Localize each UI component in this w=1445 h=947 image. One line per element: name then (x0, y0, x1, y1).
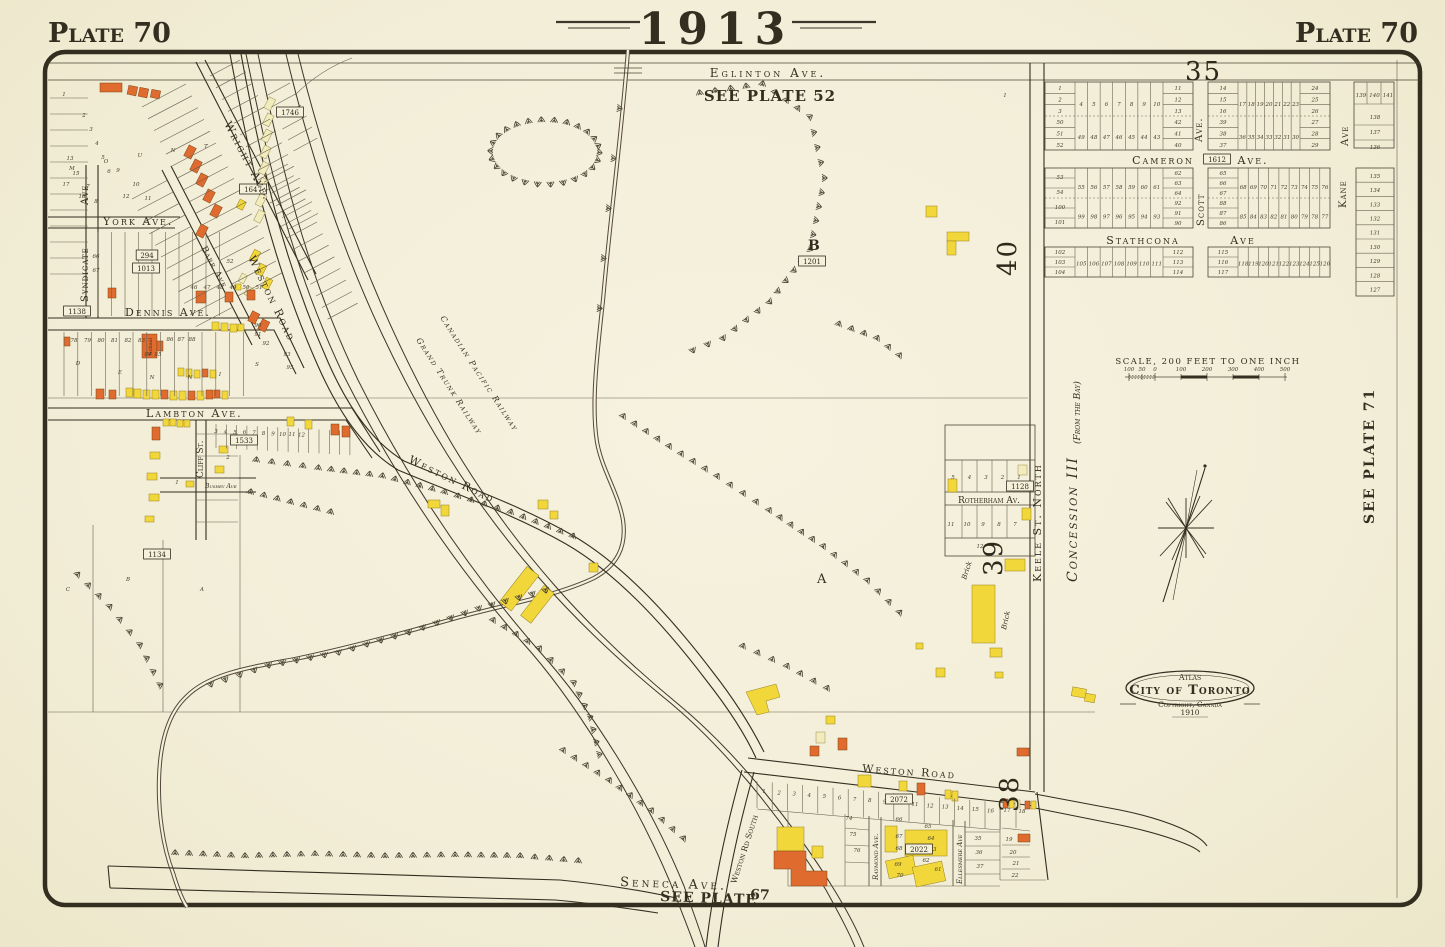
lot-number: 12 (123, 194, 130, 200)
lot-number: 23 (1291, 102, 1299, 108)
lot-division-line (299, 245, 329, 261)
lot-number: 59 (1128, 185, 1135, 191)
lot-number: 66 (896, 817, 903, 823)
lot-number: 24 (1311, 86, 1319, 92)
tree-band (175, 855, 578, 863)
lot-division-line (167, 250, 203, 269)
lot-number: 97 (1103, 214, 1110, 220)
lot-number: 28 (1311, 131, 1319, 137)
lot-number: 64 (1175, 191, 1182, 197)
lot-number: 52 (1057, 143, 1064, 149)
bushey-ave-label: Bushey Ave (204, 483, 237, 490)
brick-label-2: Brick (1000, 610, 1012, 631)
lot-number: 9 (1142, 102, 1146, 108)
lot-number: 92 (263, 341, 270, 347)
lot-number: 1 (175, 480, 179, 486)
cliff-st-label: Cliff St. (196, 440, 206, 478)
lot-number: 3 (984, 475, 988, 481)
scale-tick: 300 (1228, 367, 1239, 373)
section-35: 35 (1185, 57, 1222, 87)
lot-number: 7 (853, 797, 857, 803)
plate-label-left: Plate 70 (48, 18, 171, 49)
lot-division-line (266, 83, 290, 96)
plan-number: 1013 (137, 265, 155, 273)
lot-number: 137 (1370, 130, 1381, 136)
lot-number: 83 (138, 338, 145, 344)
lot-number: 10 (279, 432, 286, 438)
lot-number: 46 (190, 285, 198, 291)
lot-number: 61 (935, 867, 942, 873)
lot-number: 41 (1174, 131, 1182, 137)
weston-rd-south-label: Weston Rd South (729, 814, 760, 885)
district-letter: N (187, 375, 193, 381)
lot-number: 80 (98, 338, 105, 344)
lot-number: 87 (1220, 211, 1227, 217)
lot-number: 22 (1011, 873, 1019, 879)
lot-number: 116 (1218, 260, 1229, 266)
lot-division-line (294, 138, 318, 151)
lot-number: 101 (1055, 220, 1066, 226)
lot-number: 136 (1370, 145, 1381, 151)
lot-number: 61 (1153, 185, 1160, 191)
lot-number: 5 (951, 475, 955, 481)
lot-number: 44 (1140, 135, 1148, 141)
lot-number: 79 (84, 338, 91, 344)
lot-number: 12 (298, 433, 305, 439)
lot-number: 67 (896, 834, 903, 840)
lot-number: 35 (975, 836, 982, 842)
lot-number: 67 (1220, 191, 1227, 197)
lambton-ave-label: Lambton Ave. (146, 407, 243, 420)
lot-number: 19 (1257, 102, 1264, 108)
railway-tracks (246, 54, 864, 947)
district-letter: S (255, 362, 259, 368)
lot-number: 91 (1175, 211, 1182, 217)
lot-number: 9 (981, 522, 985, 528)
scale-tick: 100 (1124, 367, 1135, 373)
district-letter: M (68, 166, 75, 172)
lot-number: 121 (1269, 262, 1280, 268)
lot-number: 6 (107, 169, 111, 175)
lot-number: 3 (1058, 109, 1062, 115)
lot-division-line (142, 84, 186, 107)
lot-number: 56 (1090, 185, 1097, 191)
lot-number: 64 (928, 836, 935, 842)
lot-number: 133 (1370, 202, 1381, 208)
lot-number: 66 (1220, 181, 1227, 187)
sub-lot-letter: C (66, 587, 71, 593)
lot-number: 107 (1101, 262, 1112, 268)
scott-ave-word: Ave. (1194, 117, 1205, 143)
plan-number: 1612 (1208, 156, 1226, 164)
lot-number: 98 (1090, 214, 1097, 220)
see-plate-67-num: 67 (750, 887, 770, 904)
lot-number: 4 (807, 793, 812, 799)
tree-band (250, 494, 330, 514)
lot-number: 1 (762, 789, 766, 795)
lot-division-line (283, 116, 307, 129)
lot-number: 32 (1274, 135, 1281, 141)
lot-number: 103 (1055, 260, 1066, 266)
lot-number: 4 (1079, 102, 1084, 108)
scale-tick: 500 (1280, 367, 1291, 373)
lot-number: 4 (223, 429, 228, 435)
lot-number: 8 (94, 199, 98, 205)
scale-tick: 50 (1139, 367, 1146, 373)
lot-number: 18 (1248, 102, 1255, 108)
lot-number: 90 (255, 323, 262, 329)
lot-number: 16 (1220, 109, 1227, 115)
lot-number: 27 (1311, 120, 1319, 126)
lot-number: 16 (987, 809, 994, 815)
atlas-map-plate: 1235051524567891049484746454443111213424… (0, 0, 1445, 947)
lot-number: 81 (1281, 214, 1288, 220)
lot-division-line (173, 261, 209, 280)
lot-number: 8 (868, 798, 872, 804)
lot-number: 128 (1370, 273, 1381, 279)
lot-number: 74 (846, 816, 853, 822)
plan-number: 1533 (235, 437, 253, 445)
plan-number: 1128 (1011, 483, 1029, 491)
lot-number: 76 (1321, 185, 1328, 191)
lot-number: 65 (1220, 171, 1227, 177)
lot-number: 8 (1130, 102, 1134, 108)
lot-number: 141 (1383, 93, 1394, 99)
cameron-ave-word: Ave. (1236, 154, 1268, 167)
lot-number: 80 (1291, 214, 1298, 220)
scale-tick: 0 (1153, 367, 1157, 373)
lot-number: 11 (289, 432, 296, 438)
lot-number: 78 (1311, 214, 1318, 220)
lot-number: 135 (1370, 174, 1381, 180)
lot-division-line (288, 213, 318, 229)
syndicate-ave-label: Syndicate (80, 247, 91, 302)
lot-number: 21 (1012, 861, 1020, 867)
lot-division-line (160, 119, 204, 142)
seneca-ave-label: Seneca Ave. (620, 875, 727, 894)
lot-number: 93 (284, 352, 291, 358)
plan-number: 1134 (148, 551, 166, 559)
lot-number: 10 (1153, 102, 1160, 108)
district-letter: E (117, 370, 122, 376)
lot-number: 72 (1281, 185, 1288, 191)
lot-number: 91 (255, 332, 262, 338)
lot-number: 43 (1152, 135, 1160, 141)
sub-lot-letter: A (199, 587, 204, 593)
lot-number: 87 (178, 337, 185, 343)
lot-number: 66 (93, 254, 100, 260)
stathcona-ave-label: Stathcona (1106, 234, 1180, 247)
lot-number: 57 (1103, 185, 1110, 191)
lot-number: 17 (1239, 102, 1246, 108)
plate-label-right: Plate 70 (1295, 18, 1418, 49)
district-letter: D (75, 361, 81, 367)
lot-number: 2 (1000, 475, 1005, 481)
lot-number: 70 (1260, 185, 1267, 191)
plan-number: 1138 (68, 308, 86, 316)
lot-number: 48 (1089, 135, 1097, 141)
lot-division-line (148, 96, 192, 119)
lot-number: 13 (67, 156, 74, 162)
stamp-atlas: Atlas (1178, 673, 1201, 682)
stamp-city: City of Toronto (1129, 683, 1251, 698)
lot-number: 40 (1174, 143, 1182, 149)
district-letter: U (138, 153, 143, 159)
lot-number: 51 (1057, 131, 1064, 137)
lot-number: 86 (167, 337, 174, 343)
lot-division-line (154, 108, 198, 131)
lot-number: 99 (1078, 214, 1085, 220)
lot-number: 69 (895, 862, 902, 868)
lot-number: 85 (1240, 214, 1247, 220)
lot-division-line (228, 95, 258, 111)
lot-number: 111 (1151, 262, 1162, 268)
section-38: 38 (995, 775, 1025, 812)
weston-road-label-lower: Weston Road (862, 762, 957, 782)
lot-number: 68 (896, 846, 903, 852)
lot-number: 78 (71, 338, 78, 344)
lot-number: 6 (838, 796, 842, 802)
lot-number: 25 (1311, 97, 1319, 103)
lot-number: 95 (1128, 214, 1135, 220)
district-letter: O (104, 159, 109, 165)
rotherham-ave-label: Rotherham Av. (958, 496, 1020, 506)
district-letter: N (170, 148, 176, 154)
lot-number: 104 (1055, 270, 1066, 276)
cameron-ave-label: Cameron (1132, 154, 1194, 167)
scale-bar (1125, 373, 1287, 381)
plan-number: 1201 (803, 258, 821, 266)
lot-number: 47 (203, 285, 211, 291)
lot-number: 108 (1114, 262, 1125, 268)
lot-number: 129 (1370, 259, 1381, 265)
lot-number: 65 (925, 824, 932, 830)
lot-number: 22 (1282, 102, 1290, 108)
lot-number: 94 (1141, 214, 1148, 220)
compass-rose (1158, 464, 1214, 602)
lot-number: 126 (1320, 262, 1331, 268)
sub-lot-big-b: B (808, 238, 820, 254)
lot-number: 9 (116, 168, 120, 174)
lot-division-line (246, 131, 276, 147)
scale-tick: 200 (1201, 367, 1213, 373)
lot-number: 10 (964, 522, 971, 528)
lot-number: 83 (1260, 214, 1267, 220)
lot-number: 105 (1076, 262, 1087, 268)
tree-band (692, 86, 822, 348)
sub-lot-big-a: A (816, 572, 827, 587)
lot-number: 14 (1220, 86, 1227, 92)
see-plate-52: SEE PLATE 52 (704, 87, 836, 105)
lot-number: 139 (1356, 93, 1367, 99)
brick-label-1: Brick (960, 560, 974, 581)
lot-division-line (276, 190, 306, 206)
lot-number: 1 (1017, 475, 1021, 481)
sub-lot-letter: B (125, 577, 130, 583)
lot-number: 113 (1173, 260, 1184, 266)
lot-number: 29 (1311, 143, 1319, 149)
lot-number: 2 (225, 455, 230, 461)
lot-number: 37 (1220, 143, 1227, 149)
lot-division-line (281, 210, 311, 226)
lot-number: 1 (1058, 86, 1062, 92)
lot-number: 26 (1311, 109, 1319, 115)
lot-number: 11 (145, 196, 152, 202)
see-plate-71: SEE PLATE 71 (1362, 388, 1378, 524)
lot-number: 3 (89, 127, 93, 133)
lot-number: 12 (1175, 97, 1182, 103)
lot-number: 31 (1283, 135, 1290, 141)
lot-division-line (316, 280, 346, 296)
lot-number: 71 (1270, 185, 1277, 191)
lot-division-line (214, 226, 258, 249)
lot-number: 106 (1089, 262, 1100, 268)
lot-number: 76 (854, 848, 861, 854)
raymond-ave-label: Raymond Ave. (872, 834, 880, 881)
dennis-ave-label: Dennis Ave. (125, 306, 211, 319)
lot-number: 12 (927, 803, 934, 809)
lot-number: 50 (1057, 120, 1064, 126)
lot-number: 3 (792, 792, 796, 798)
lot-number: 131 (1370, 231, 1381, 237)
lot-number: 20 (1009, 850, 1017, 856)
lot-number: 33 (1266, 135, 1273, 141)
district-letters: MOUNTDENNISCBA100500100200300400500 (66, 144, 1291, 593)
stamp-year: 1910 (1180, 708, 1199, 717)
scale-tick: 100 (1176, 367, 1187, 373)
labels: 1913 Plate 70 Plate 70 Eglinton Ave. SEE… (48, 4, 1418, 908)
lot-number: 62 (1175, 171, 1182, 177)
lot-number: 2 (776, 790, 781, 796)
map-canvas: 1235051524567891049484746454443111213424… (0, 0, 1445, 947)
keele-st-label: Keele St. North (1031, 463, 1044, 582)
lot-number: 38 (1220, 131, 1227, 137)
section-40: 40 (993, 239, 1023, 276)
lot-division-line (210, 60, 240, 76)
tree-band (492, 622, 597, 755)
lot-number: 84 (1250, 214, 1257, 220)
lot-division-line (202, 202, 246, 225)
lot-number: 1 (1003, 93, 1007, 99)
gtr-label: Grand Trunk Railway (414, 336, 483, 436)
lot-number: 75 (1311, 185, 1318, 191)
lot-number: 7 (1117, 102, 1121, 108)
tree-band (256, 462, 572, 538)
lot-number: 5 (823, 794, 827, 800)
lot-number: 42 (1174, 120, 1182, 126)
lot-number: 85 (155, 352, 162, 358)
lot-number: 47 (1102, 135, 1110, 141)
lot-number: 4 (94, 141, 99, 147)
lot-number: 109 (1126, 262, 1137, 268)
lot-number: 88 (1220, 201, 1227, 207)
scale-tick: 400 (1253, 367, 1265, 373)
lot-number: 53 (1057, 175, 1064, 181)
lot-number: 140 (1369, 93, 1380, 99)
tree-band (210, 588, 545, 682)
subdivision-lot-lines (50, 60, 1000, 830)
lot-number: 117 (1218, 270, 1229, 276)
barr-ave-label: Barr Ave (198, 245, 228, 290)
lot-number: 96 (1116, 214, 1123, 220)
lot-number: 95 (287, 365, 294, 371)
lot-number: 100 (1055, 205, 1066, 211)
lot-number: 127 (1370, 288, 1381, 294)
district-letter: N (149, 375, 155, 381)
lot-number: 6 (1105, 102, 1109, 108)
tree-band (742, 648, 826, 690)
ave-fragment-label: Ave (80, 185, 91, 206)
lot-number: 7 (1013, 522, 1017, 528)
lot-number: 86 (1220, 221, 1227, 227)
lot-division-line (222, 84, 252, 100)
lot-number: 92 (1175, 201, 1182, 207)
lot-number: 36 (976, 850, 983, 856)
district-letter: I (218, 372, 222, 378)
lot-number: 37 (977, 864, 984, 870)
tree-band (838, 326, 898, 357)
lot-number: 82 (1270, 214, 1277, 220)
lot-number: 79 (1301, 214, 1308, 220)
lot-number: 46 (1115, 135, 1123, 141)
lot-number: 49 (1077, 135, 1085, 141)
lot-number: 114 (1173, 270, 1184, 276)
lot-number: 11 (1175, 86, 1182, 92)
lot-number: 54 (1057, 190, 1064, 196)
lot-number: 2 (81, 113, 86, 119)
district-letter: T (204, 144, 208, 150)
lot-number: 8 (262, 431, 266, 437)
plan-number: 1746 (281, 109, 299, 117)
lot-number: 55 (1078, 185, 1085, 191)
lot-number: 52 (227, 259, 234, 265)
cpr-label: Canadian Pacific Railway (438, 314, 520, 433)
lot-number: 81 (111, 338, 118, 344)
lot-number: 13 (1175, 109, 1182, 115)
title-year: 1913 (639, 4, 793, 55)
lot-number: 74 (1301, 185, 1308, 191)
lot-number: 20 (1265, 102, 1273, 108)
lot-number: 112 (1173, 250, 1184, 256)
lot-number: 134 (1370, 188, 1381, 194)
lot-number: 19 (1006, 837, 1013, 843)
kane-ave-label: Kane (1338, 180, 1349, 208)
lot-number: 138 (1370, 115, 1381, 121)
from-bay-label: (From the Bay) (1072, 381, 1083, 444)
lot-number: 3 (214, 429, 218, 435)
lot-number: 49 (229, 285, 237, 291)
lot-number: 77 (1321, 214, 1328, 220)
lot-number: 60 (1141, 185, 1148, 191)
kane-ave-word: Ave (1340, 126, 1351, 147)
lot-number: 58 (1116, 185, 1123, 191)
lot-number: 30 (1292, 135, 1299, 141)
lot-number: 68 (1240, 185, 1247, 191)
lot-number: 62 (923, 858, 930, 864)
york-ave-label: York Ave. (102, 215, 173, 228)
ellesmere-ave-label: Ellesmere Ave (956, 834, 964, 885)
lot-number: 14 (957, 806, 964, 812)
lot-division-line (155, 226, 191, 245)
lot-number: 13 (942, 805, 949, 811)
lot-number: 15 (1220, 97, 1227, 103)
lot-number: 8 (997, 522, 1001, 528)
lot-number: 75 (850, 832, 857, 838)
lot-number: 21 (1273, 102, 1281, 108)
lot-number: 15 (972, 807, 979, 813)
lot-division-line (178, 155, 222, 178)
tree-band (76, 576, 158, 686)
